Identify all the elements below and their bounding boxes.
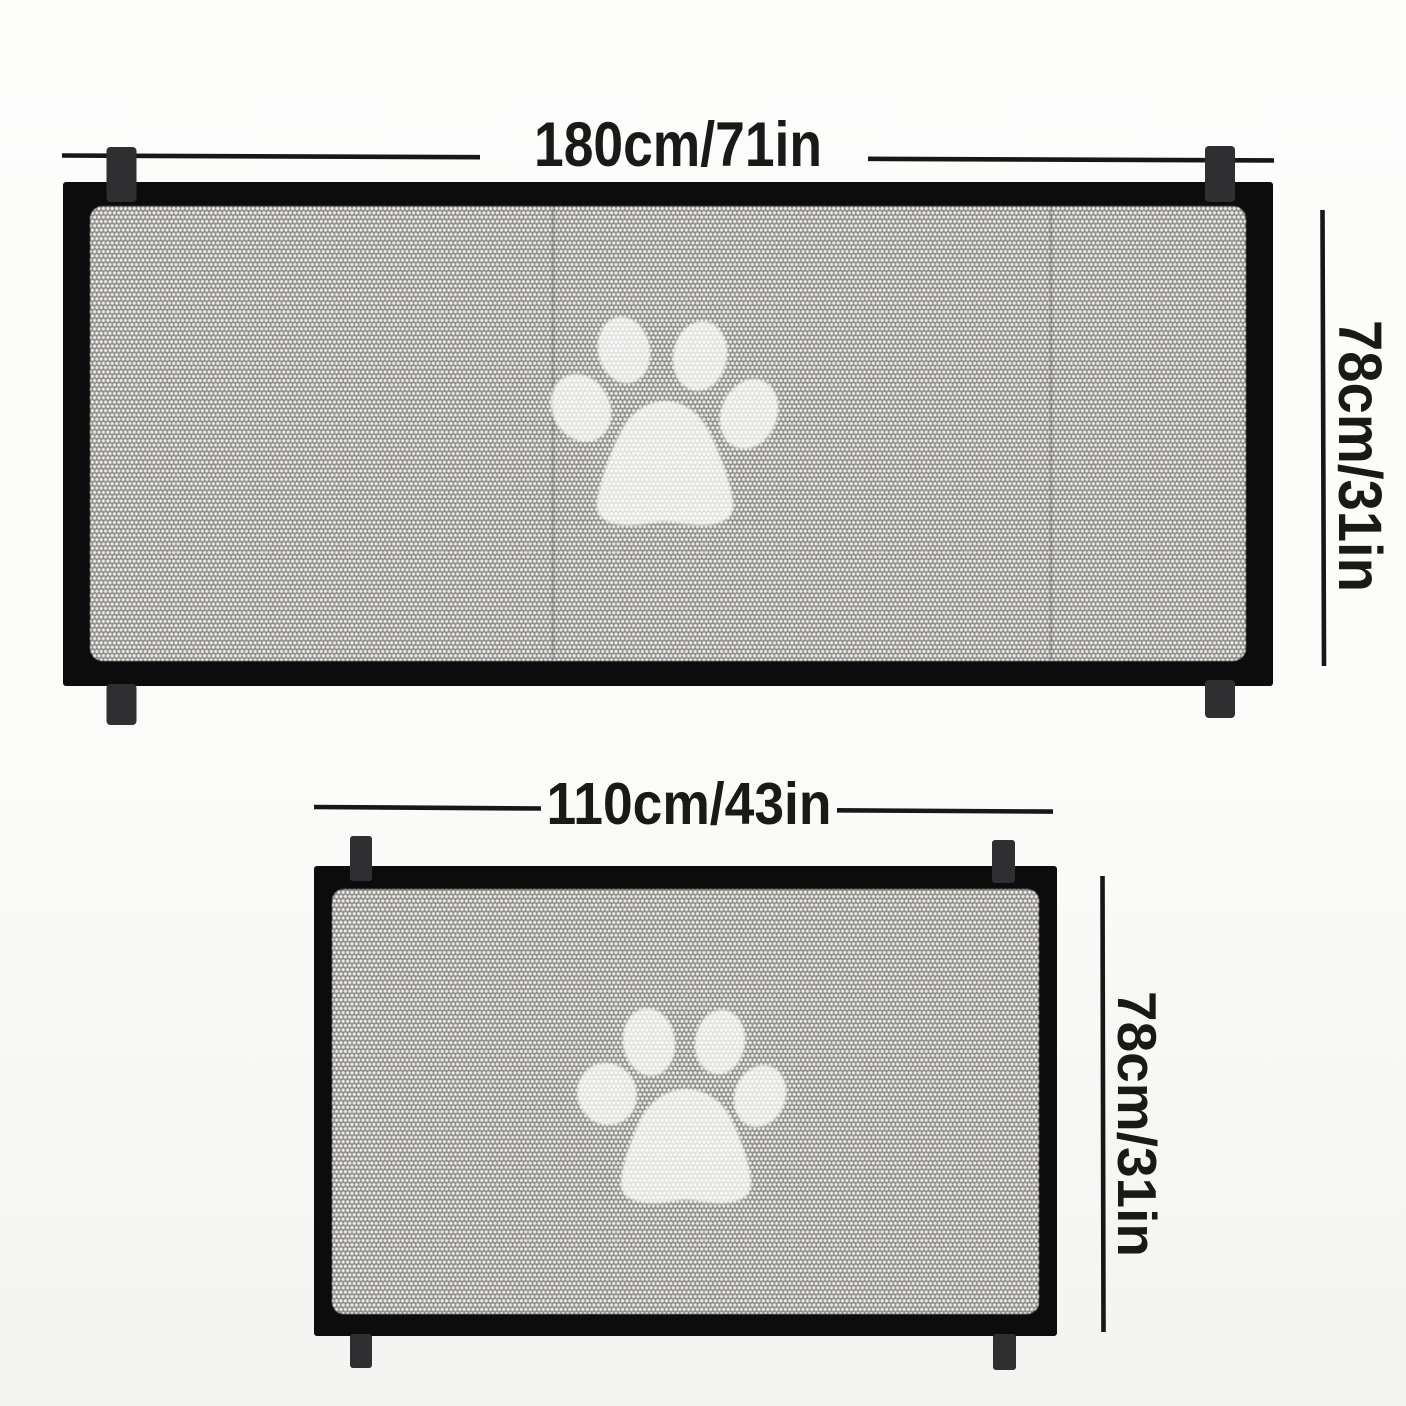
svg-text:110cm/43in: 110cm/43in [547,771,832,837]
svg-text:78cm/31in: 78cm/31in [1326,320,1394,592]
svg-text:78cm/31in: 78cm/31in [1106,991,1168,1257]
svg-text:180cm/71in: 180cm/71in [534,110,822,180]
